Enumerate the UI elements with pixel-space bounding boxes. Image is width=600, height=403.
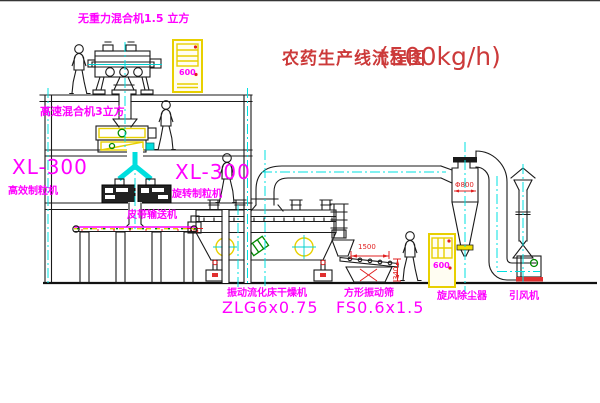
label-granulator-left-model: XL-300 (12, 157, 88, 177)
label-granulator-left-name: 高效制粒机 (8, 187, 58, 197)
fluid-bed-dryer (185, 200, 336, 281)
granulator-left (102, 179, 135, 203)
induced-draft-fan (516, 256, 543, 282)
high-speed-mixer (96, 126, 156, 152)
granulator-right (138, 179, 171, 203)
label-granulator-mid-name: 旋转制粒机 (172, 190, 222, 200)
label-screen-model: FS0.6x1.5 (336, 300, 424, 316)
belt-conveyor (73, 226, 197, 283)
cabinet-1-label: 600 (179, 69, 196, 77)
person-floor2 (155, 101, 175, 150)
label-fan: 引风机 (509, 292, 539, 302)
dimension-1500 (351, 251, 389, 259)
dim-text-screen-length: 1500 (358, 244, 376, 251)
page-title-capacity: (500kg/h) (379, 44, 501, 69)
label-belt-conveyor: 皮带输送机 (127, 211, 177, 221)
dim-text-cyclone-diameter: Φ800 (455, 182, 474, 189)
control-cabinet-1 (173, 40, 202, 92)
dim-text-screen-height: 340 (393, 267, 400, 280)
label-gravity-mixer: 无重力混合机1.5 立方 (78, 13, 189, 24)
label-dryer-model: ZLG6x0.75 (222, 300, 319, 316)
cabinet-2-label: 600 (433, 262, 450, 270)
person-roof (70, 45, 90, 94)
label-high-speed-mixer: 高速混合机3立方 (40, 106, 125, 117)
label-cyclone: 旋风除尘器 (437, 292, 487, 302)
label-granulator-mid-model: XL-300 (175, 162, 251, 182)
person-ground (401, 232, 421, 281)
process-flow-diagram: 无重力混合机1.5 立方 农药生产线流程图 (500kg/h) 高速混合机3立方… (0, 0, 600, 403)
